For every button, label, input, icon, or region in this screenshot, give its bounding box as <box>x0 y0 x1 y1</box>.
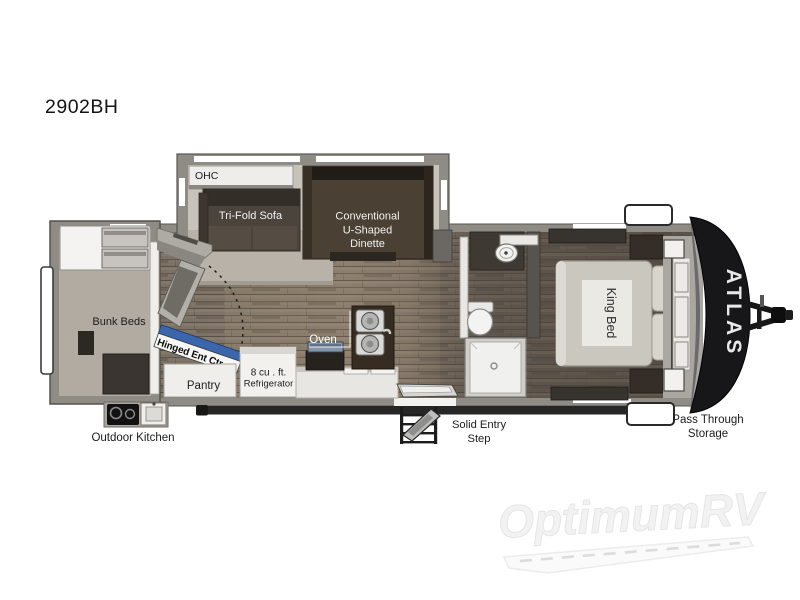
svg-text:Refrigerator: Refrigerator <box>244 378 294 389</box>
svg-text:Solid Entry: Solid Entry <box>452 419 507 431</box>
svg-text:2902BH: 2902BH <box>45 96 118 118</box>
svg-text:OHC: OHC <box>195 170 219 182</box>
svg-text:ATLAS: ATLAS <box>722 269 745 357</box>
svg-text:King Bed: King Bed <box>604 288 618 339</box>
svg-text:Bunk Beds: Bunk Beds <box>92 316 146 328</box>
svg-text:Tri-Fold Sofa: Tri-Fold Sofa <box>219 210 283 222</box>
svg-text:Pantry: Pantry <box>187 380 220 392</box>
svg-text:Outdoor Kitchen: Outdoor Kitchen <box>91 432 174 444</box>
svg-text:Step: Step <box>467 433 490 445</box>
svg-text:Dinette: Dinette <box>350 238 385 250</box>
svg-text:Pass Through: Pass Through <box>672 414 743 426</box>
svg-text:Storage: Storage <box>688 428 728 440</box>
svg-text:Conventional: Conventional <box>335 211 399 223</box>
svg-text:U-Shaped: U-Shaped <box>343 225 393 237</box>
svg-text:Oven: Oven <box>309 334 337 346</box>
